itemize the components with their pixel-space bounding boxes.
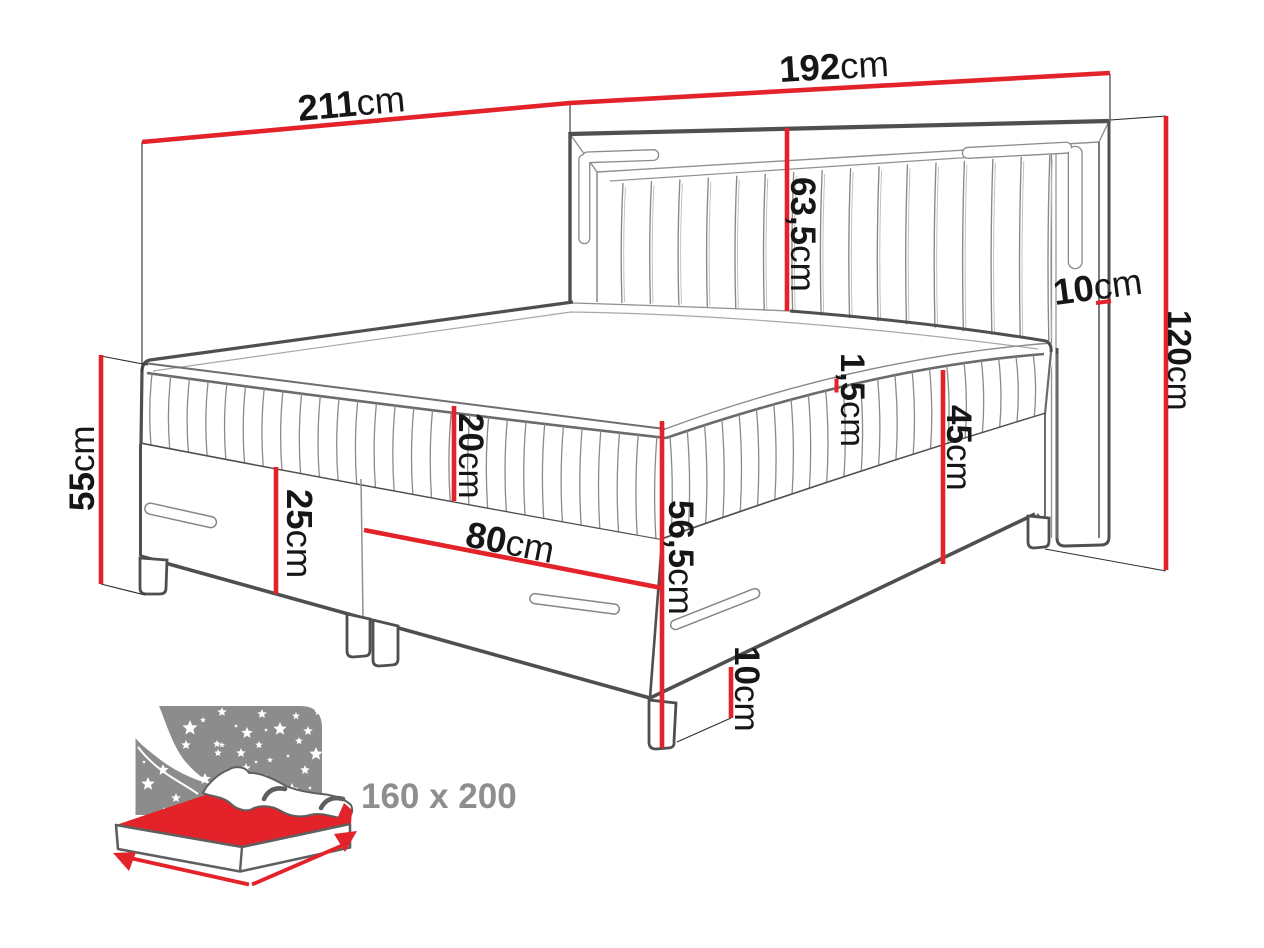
- svg-text:56,5cm: 56,5cm: [661, 500, 700, 615]
- svg-text:25cm: 25cm: [279, 489, 320, 578]
- svg-text:20cm: 20cm: [451, 413, 490, 499]
- svg-text:120cm: 120cm: [1160, 310, 1197, 411]
- svg-text:160 x 200: 160 x 200: [361, 777, 517, 816]
- svg-text:63,5cm: 63,5cm: [783, 177, 822, 292]
- svg-text:55cm: 55cm: [63, 425, 102, 511]
- svg-text:192cm: 192cm: [778, 43, 890, 90]
- svg-text:45cm: 45cm: [939, 405, 978, 491]
- svg-text:1,5cm: 1,5cm: [833, 353, 871, 447]
- svg-text:10cm: 10cm: [727, 646, 766, 732]
